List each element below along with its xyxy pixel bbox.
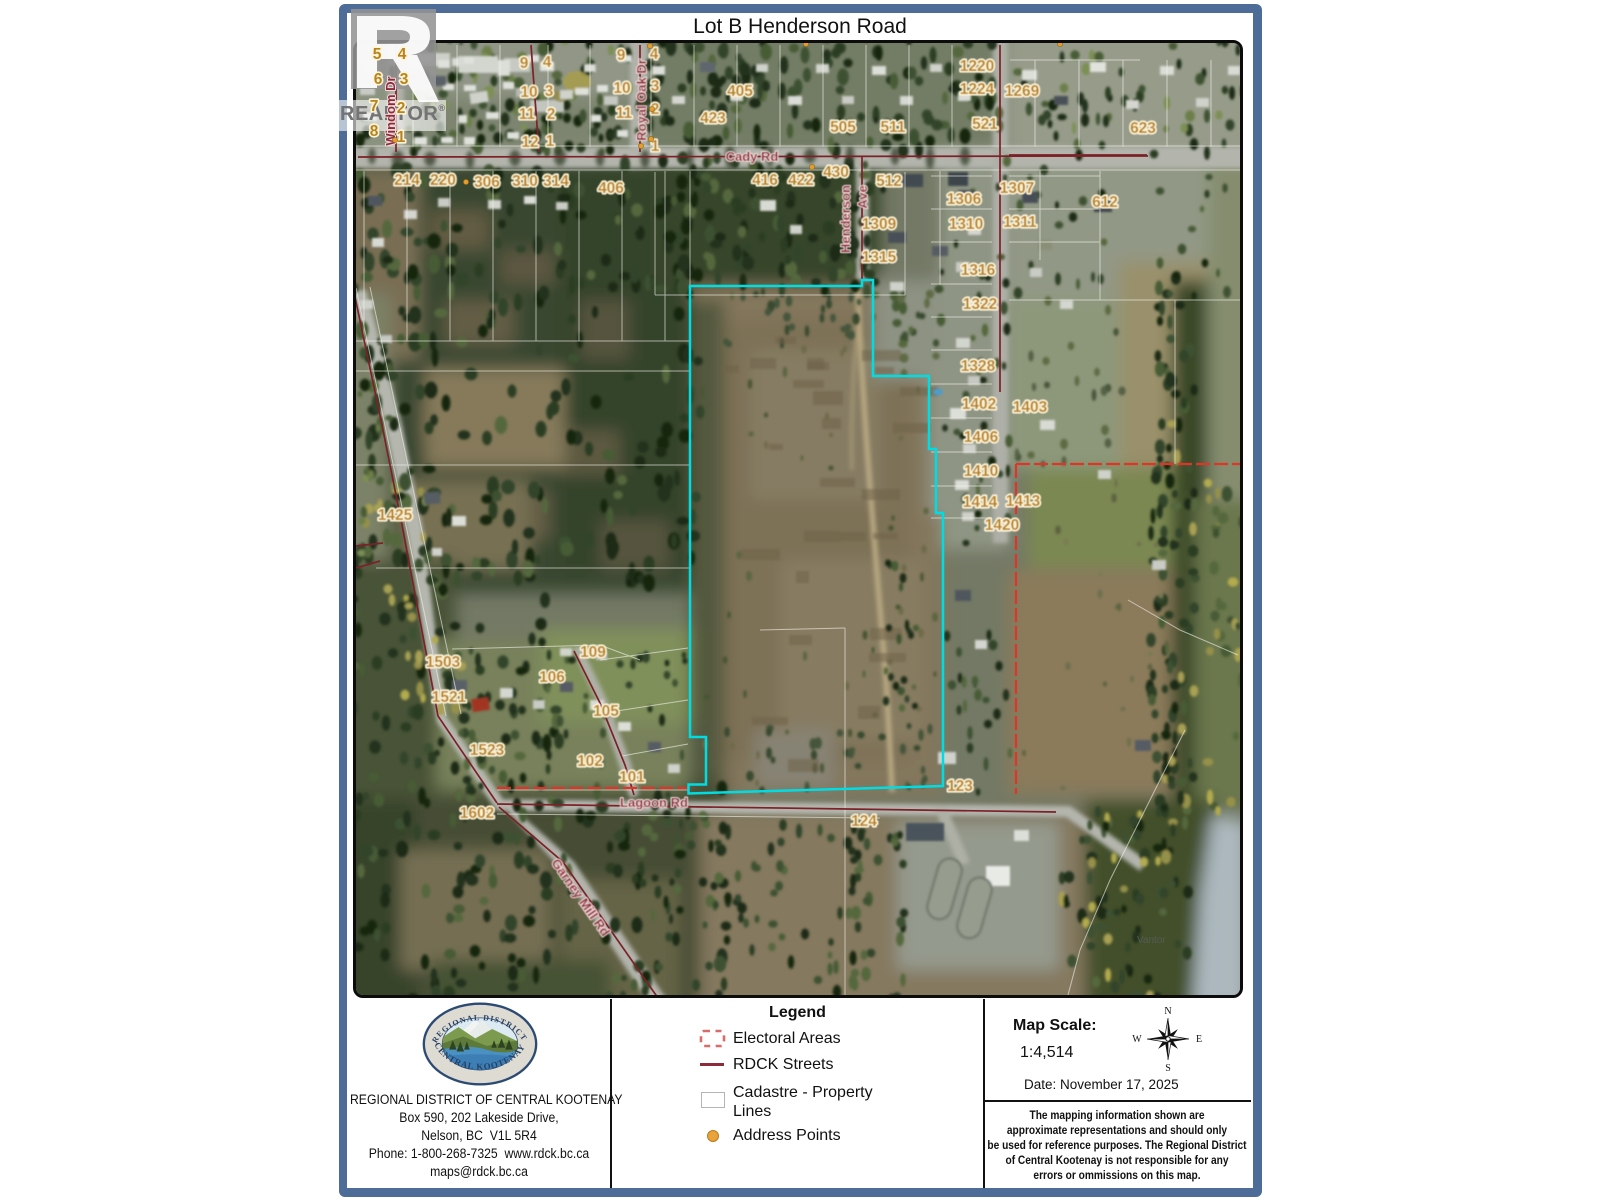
- svg-text:124: 124: [851, 813, 877, 830]
- svg-text:1311: 1311: [1003, 214, 1037, 231]
- svg-text:405: 405: [727, 83, 753, 100]
- svg-text:1420: 1420: [985, 517, 1019, 534]
- svg-text:1403: 1403: [1013, 399, 1048, 416]
- svg-text:12: 12: [521, 134, 538, 151]
- svg-text:3: 3: [400, 71, 409, 88]
- svg-text:310: 310: [512, 173, 538, 190]
- svg-text:8: 8: [370, 123, 379, 140]
- svg-text:4: 4: [398, 46, 407, 63]
- svg-text:10: 10: [520, 84, 537, 101]
- svg-text:11: 11: [519, 106, 536, 123]
- svg-text:Windom Dr: Windom Dr: [383, 76, 398, 145]
- svg-text:1307: 1307: [1000, 180, 1034, 197]
- svg-text:1521: 1521: [432, 689, 467, 706]
- svg-text:612: 612: [1092, 194, 1118, 211]
- svg-text:123: 123: [947, 778, 973, 795]
- svg-text:1309: 1309: [862, 216, 897, 233]
- svg-text:511: 511: [880, 119, 905, 136]
- svg-text:1425: 1425: [378, 507, 413, 524]
- svg-text:422: 422: [788, 172, 814, 189]
- svg-text:1328: 1328: [961, 358, 996, 375]
- svg-text:1410: 1410: [964, 463, 998, 480]
- svg-text:9: 9: [617, 47, 626, 64]
- svg-text:101: 101: [619, 769, 645, 786]
- svg-text:2: 2: [547, 106, 556, 123]
- svg-text:102: 102: [577, 753, 603, 770]
- svg-text:430: 430: [823, 164, 849, 181]
- svg-text:505: 505: [830, 119, 856, 136]
- svg-text:314: 314: [543, 173, 569, 190]
- svg-text:7: 7: [370, 98, 379, 115]
- svg-text:1406: 1406: [964, 429, 999, 446]
- svg-text:6: 6: [374, 71, 383, 88]
- svg-text:1413: 1413: [1006, 493, 1041, 510]
- svg-text:423: 423: [700, 110, 726, 127]
- svg-text:512: 512: [876, 173, 902, 190]
- svg-text:10: 10: [613, 80, 630, 97]
- svg-text:1523: 1523: [470, 742, 505, 759]
- svg-text:406: 406: [598, 180, 624, 197]
- svg-text:1503: 1503: [426, 654, 461, 671]
- svg-text:1322: 1322: [963, 296, 997, 313]
- svg-text:Cady Rd: Cady Rd: [726, 149, 779, 164]
- svg-text:Vantor: Vantor: [1137, 935, 1166, 946]
- svg-text:306: 306: [474, 174, 500, 191]
- svg-text:Henderson: Henderson: [838, 185, 853, 253]
- svg-text:5: 5: [373, 46, 382, 63]
- svg-text:E: E: [1196, 1034, 1202, 1045]
- svg-text:1602: 1602: [460, 805, 494, 822]
- svg-text:623: 623: [1130, 120, 1156, 137]
- svg-text:106: 106: [539, 669, 565, 686]
- svg-text:1: 1: [397, 129, 406, 146]
- svg-text:1220: 1220: [960, 58, 994, 75]
- svg-text:109: 109: [580, 644, 606, 661]
- svg-text:1316: 1316: [961, 262, 996, 279]
- svg-text:Royal Oak Dr: Royal Oak Dr: [634, 59, 649, 141]
- svg-text:11: 11: [616, 105, 633, 122]
- svg-text:N: N: [1164, 1006, 1171, 1017]
- svg-text:W: W: [1132, 1034, 1142, 1045]
- svg-text:3: 3: [545, 83, 554, 100]
- svg-text:1414: 1414: [963, 494, 998, 511]
- svg-text:416: 416: [752, 172, 778, 189]
- svg-text:Lagoon Rd: Lagoon Rd: [620, 795, 688, 810]
- svg-text:1402: 1402: [962, 396, 996, 413]
- svg-text:521: 521: [972, 116, 998, 133]
- svg-text:1306: 1306: [947, 191, 982, 208]
- svg-text:1224: 1224: [960, 81, 995, 98]
- svg-text:1315: 1315: [862, 249, 897, 266]
- svg-text:4: 4: [543, 54, 552, 71]
- svg-text:Ave: Ave: [855, 185, 870, 208]
- svg-text:1310: 1310: [949, 216, 983, 233]
- svg-text:S: S: [1165, 1063, 1171, 1073]
- svg-text:1: 1: [546, 133, 555, 150]
- svg-text:1269: 1269: [1005, 83, 1040, 100]
- svg-text:9: 9: [520, 55, 529, 72]
- svg-text:3: 3: [651, 78, 660, 95]
- svg-text:105: 105: [593, 703, 619, 720]
